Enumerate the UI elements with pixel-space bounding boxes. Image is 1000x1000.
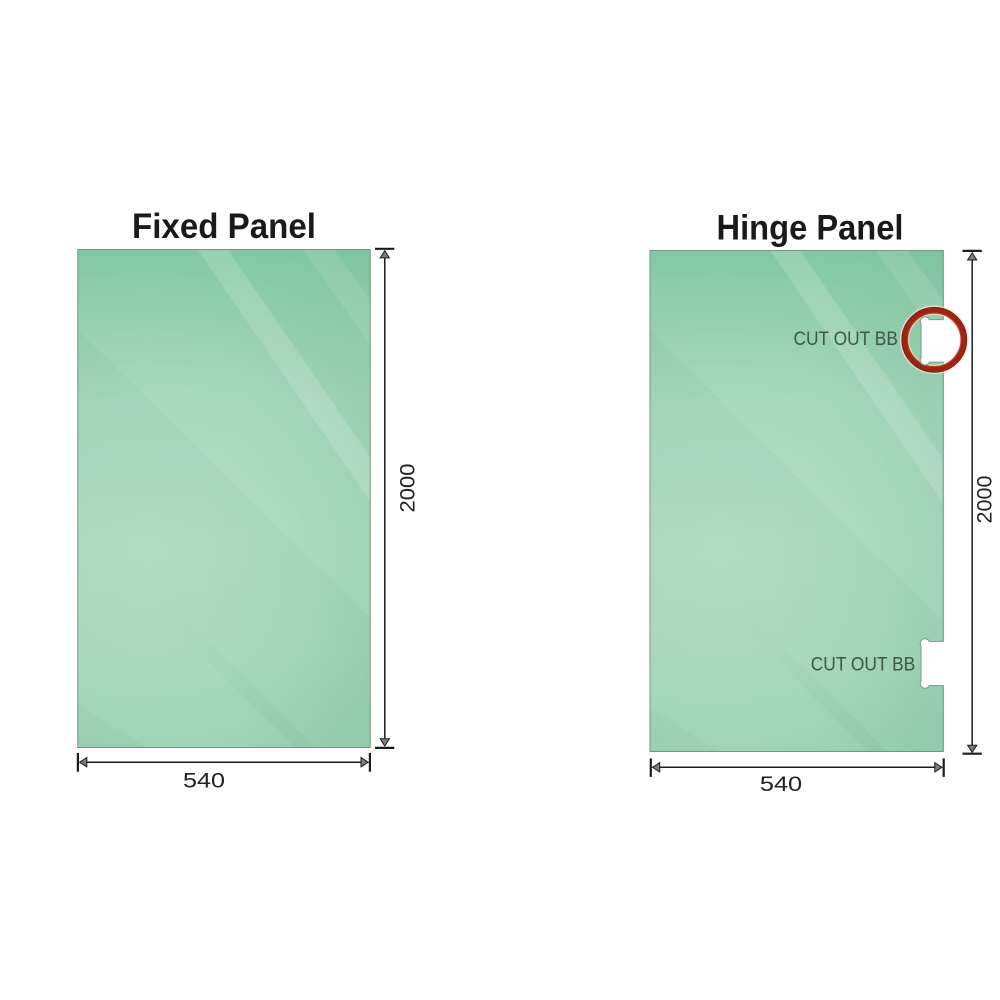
svg-text:Hinge Panel: Hinge Panel [717, 209, 904, 248]
svg-text:CUT OUT BB: CUT OUT BB [811, 654, 916, 676]
svg-text:540: 540 [183, 770, 225, 793]
svg-text:Fixed Panel: Fixed Panel [132, 207, 316, 246]
svg-text:540: 540 [760, 773, 802, 796]
svg-text:2000: 2000 [974, 476, 997, 524]
svg-text:2000: 2000 [397, 464, 420, 513]
svg-text:CUT OUT BB: CUT OUT BB [793, 328, 898, 350]
